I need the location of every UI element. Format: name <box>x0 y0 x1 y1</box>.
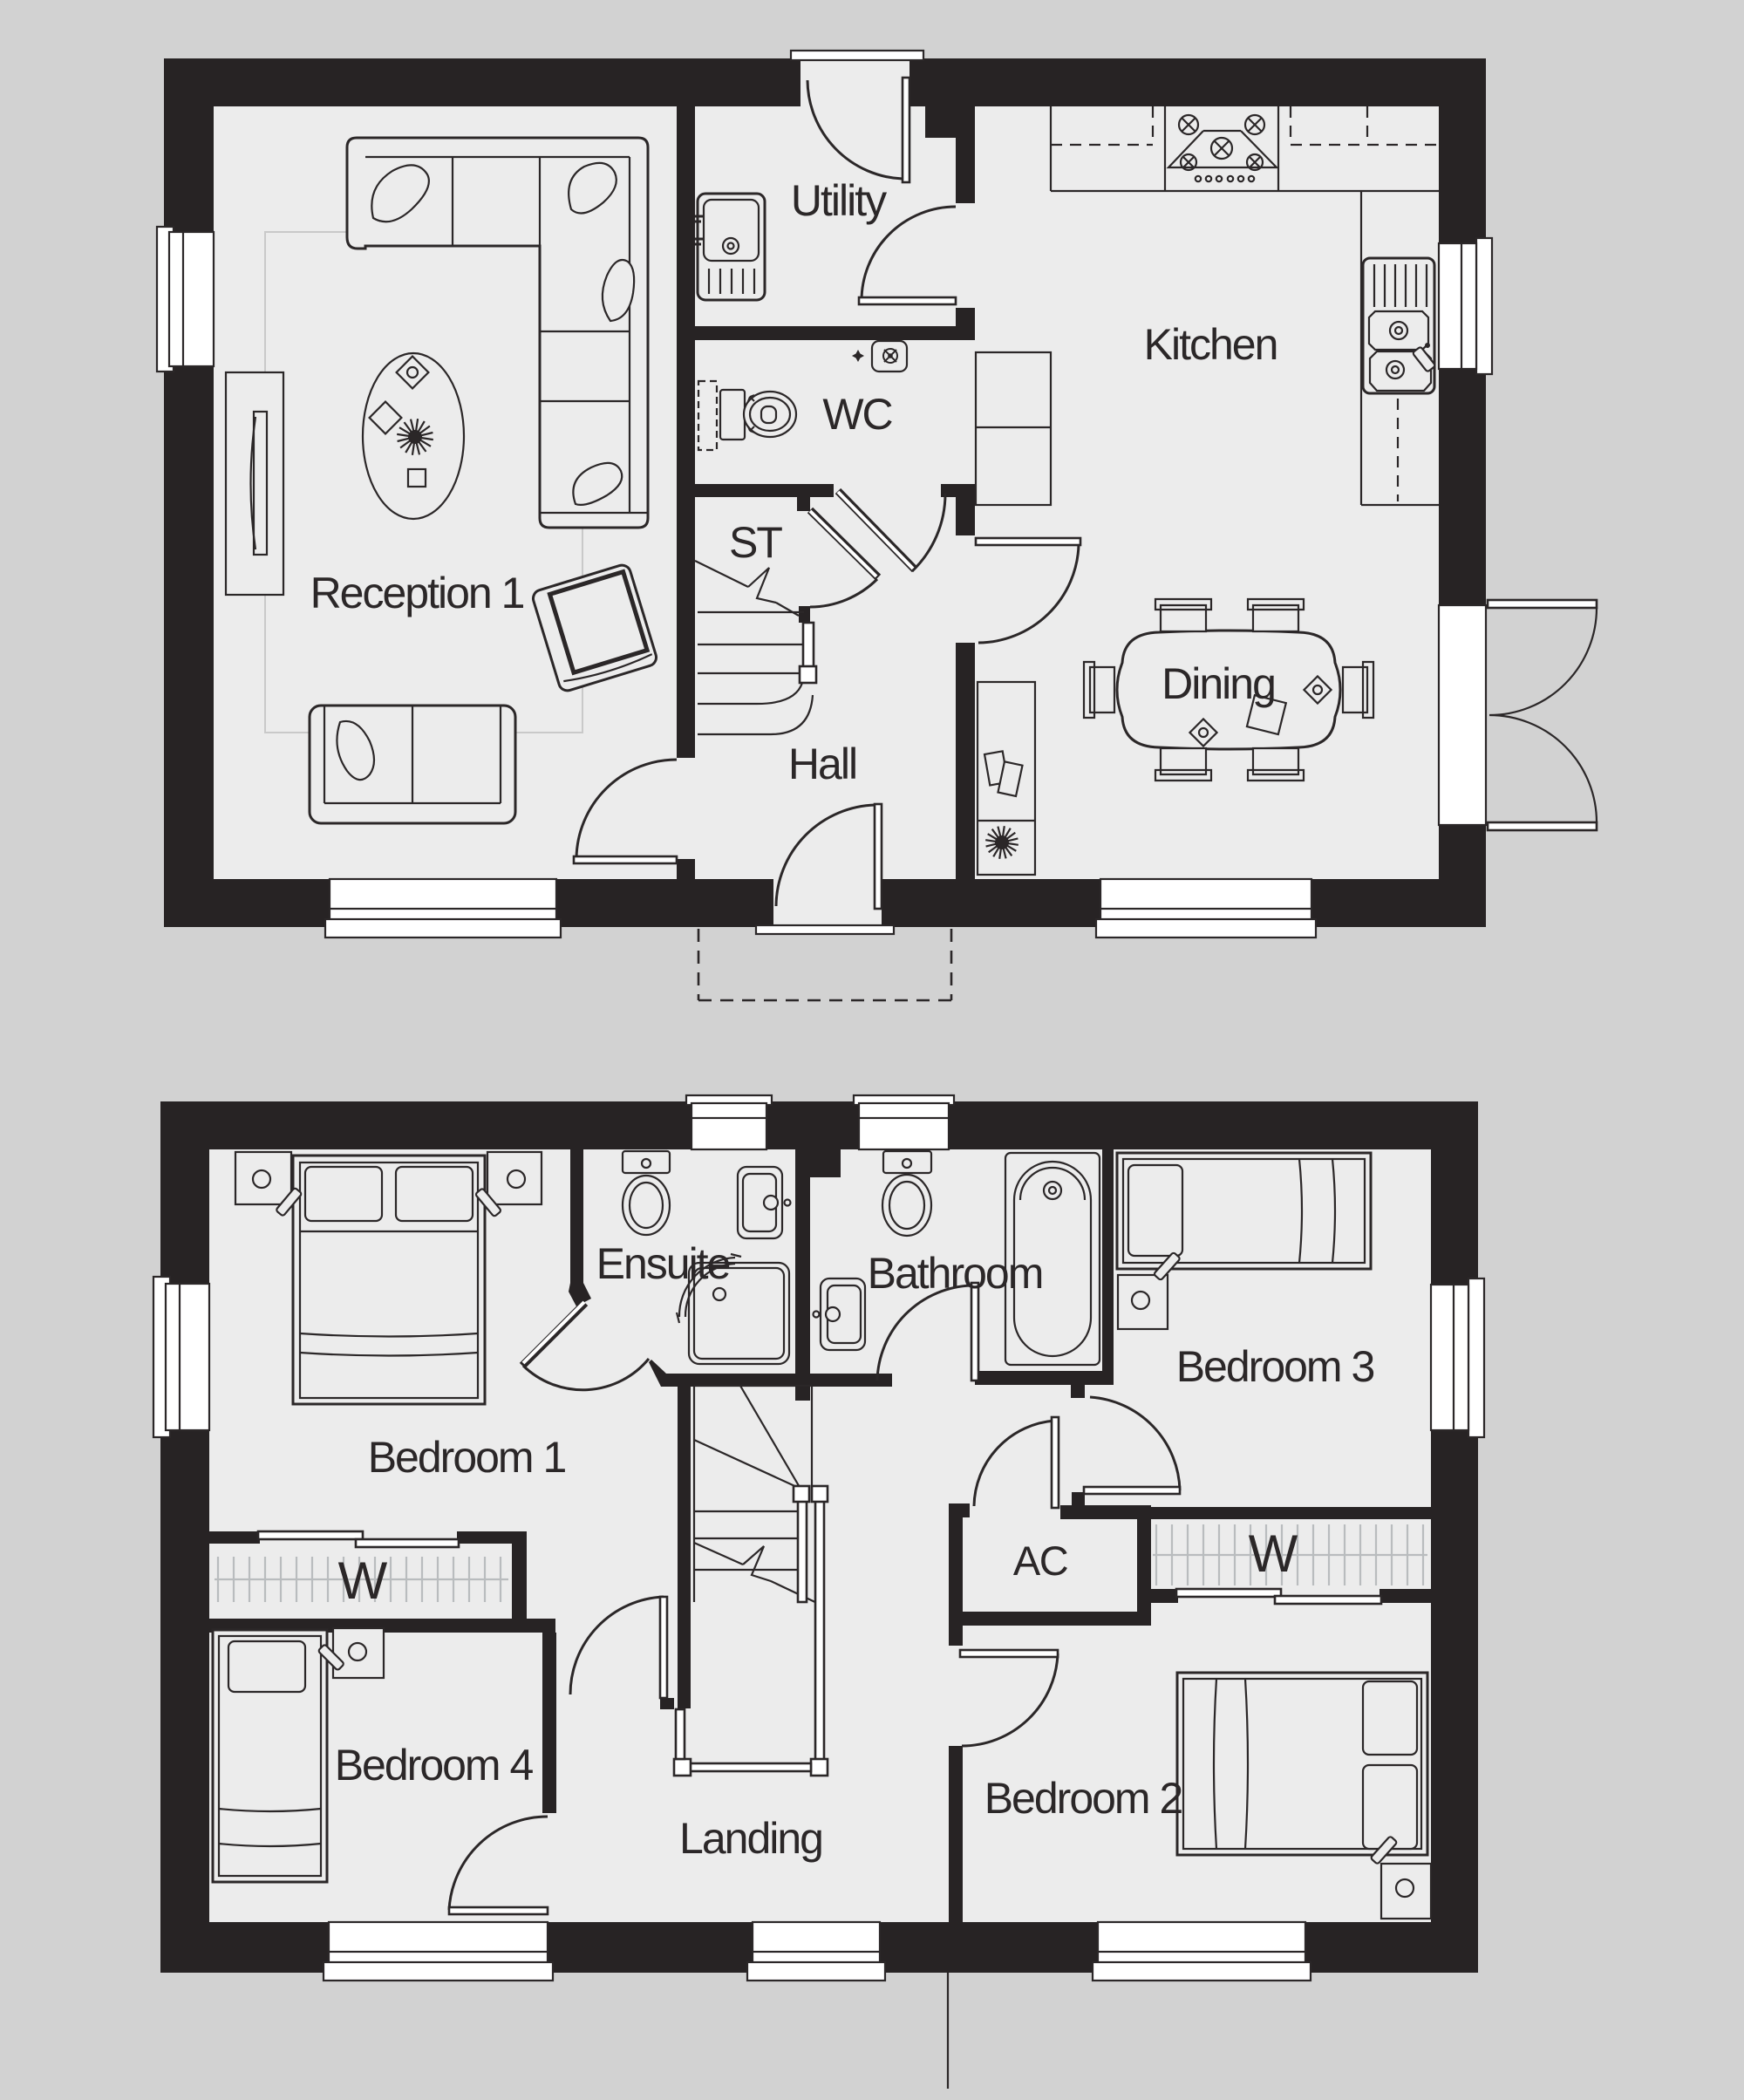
svg-text:W: W <box>1249 1524 1298 1583</box>
svg-text:Utility: Utility <box>791 176 887 225</box>
svg-text:Bathroom: Bathroom <box>868 1249 1043 1298</box>
svg-text:Hall: Hall <box>788 740 856 788</box>
svg-text:ST: ST <box>729 518 782 567</box>
svg-text:WC: WC <box>822 390 892 439</box>
svg-text:Bedroom 2: Bedroom 2 <box>984 1774 1182 1823</box>
svg-text:AC: AC <box>1013 1537 1068 1584</box>
svg-text:Bedroom 4: Bedroom 4 <box>335 1741 534 1790</box>
svg-text:Reception 1: Reception 1 <box>310 569 524 617</box>
svg-text:Dining: Dining <box>1162 659 1275 708</box>
svg-text:W: W <box>338 1551 388 1610</box>
svg-text:Landing: Landing <box>679 1814 822 1863</box>
svg-text:Bedroom 3: Bedroom 3 <box>1176 1342 1374 1391</box>
svg-text:Kitchen: Kitchen <box>1144 320 1277 369</box>
svg-text:Bedroom 1: Bedroom 1 <box>368 1433 566 1482</box>
svg-text:Ensuite: Ensuite <box>596 1239 730 1288</box>
